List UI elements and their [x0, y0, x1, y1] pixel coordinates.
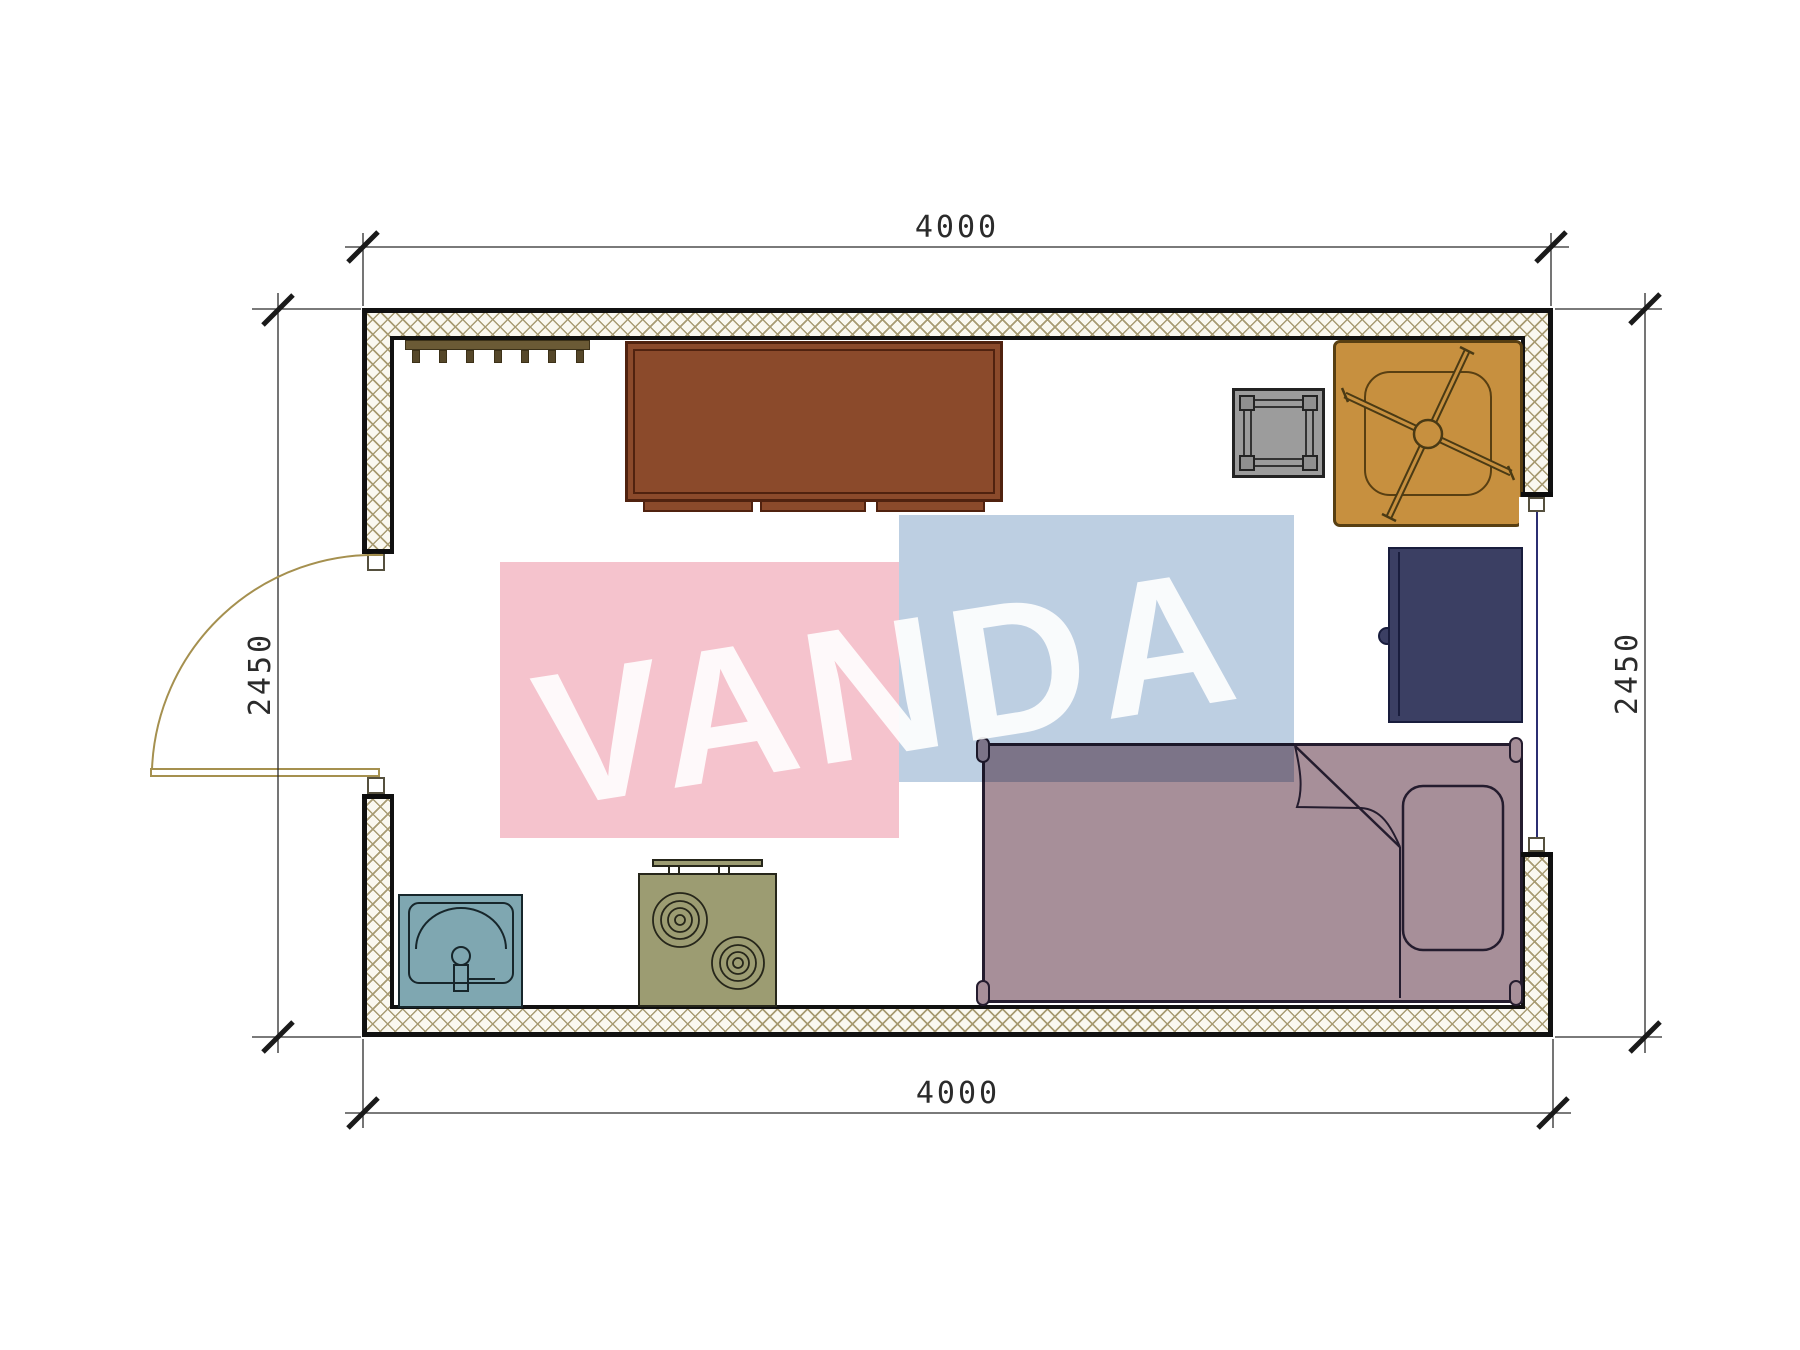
stove-burner: [712, 937, 764, 989]
stove-handle-post: [678, 866, 680, 873]
bed: [982, 743, 1523, 1003]
wardrobe-top-outline: [633, 349, 995, 494]
stove-burners: [640, 875, 775, 1005]
coat-hook: [548, 350, 556, 363]
stool: [1232, 388, 1325, 478]
bed-pillow: [1403, 786, 1503, 950]
bed-post: [1509, 737, 1523, 763]
dimension-label-top: 4000: [877, 212, 1037, 244]
coat-rack: [405, 340, 590, 350]
wardrobe: [625, 341, 1003, 502]
dimension-line-right: [1555, 293, 1662, 1053]
stool-leg: [1302, 455, 1318, 471]
coat-hook: [412, 350, 420, 363]
coat-hook: [576, 350, 584, 363]
sink-faucet: [452, 947, 470, 965]
bed-post: [976, 980, 990, 1006]
nightstand: [1388, 547, 1523, 723]
coat-hook: [439, 350, 447, 363]
door-opening: [358, 554, 394, 794]
floor-plan-canvas: VANDA: [0, 0, 1800, 1350]
window-glass: [1536, 512, 1538, 837]
coat-hook: [521, 350, 529, 363]
door-jamb-cap-bottom: [362, 794, 390, 799]
coat-hook: [466, 350, 474, 363]
coat-hook: [494, 350, 502, 363]
stool-leg: [1239, 455, 1255, 471]
sink-details: [400, 896, 521, 1006]
door-leaf: [150, 768, 380, 777]
window-jamb-top: [1528, 497, 1545, 512]
bed-details: [985, 746, 1520, 1000]
stool-frame: [1250, 406, 1307, 460]
chair-swivel-base: [1336, 343, 1520, 524]
stove-handle-post: [728, 866, 730, 873]
dimension-label-bottom: 4000: [878, 1078, 1038, 1110]
stove-handle: [652, 859, 763, 867]
stool-leg: [1239, 395, 1255, 411]
stove-handle-post: [718, 866, 720, 873]
door-jamb-top: [367, 554, 385, 571]
dimension-label-right: 2450: [1612, 593, 1644, 753]
sink-basin: [416, 908, 506, 949]
stove-burner: [653, 893, 707, 947]
office-chair: [1333, 340, 1523, 527]
nightstand-door-line: [1398, 552, 1400, 716]
dimension-label-left: 2450: [245, 594, 277, 754]
bed-blanket-fold: [1295, 746, 1400, 847]
sink: [398, 894, 523, 1008]
window-jamb-bottom: [1528, 837, 1545, 852]
bed-post: [1509, 980, 1523, 1006]
window-jamb-cap-bottom: [1521, 852, 1553, 857]
stool-leg: [1302, 395, 1318, 411]
window-opening: [1519, 497, 1559, 852]
stove: [638, 873, 777, 1007]
stove-handle-post: [668, 866, 670, 873]
door-jamb-bottom: [367, 777, 385, 794]
